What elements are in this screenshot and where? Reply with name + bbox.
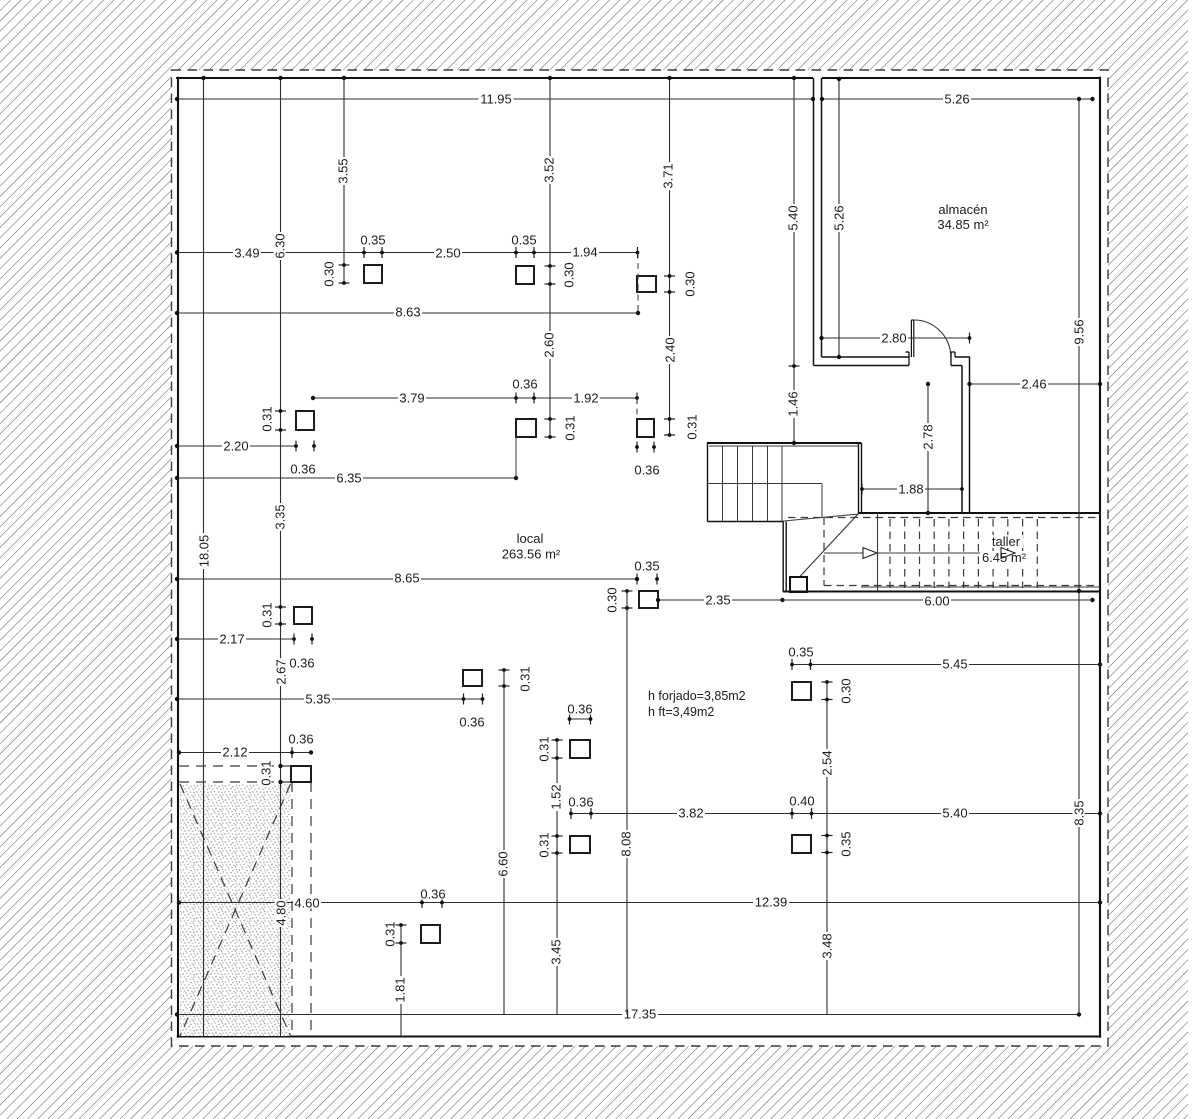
svg-text:0.36: 0.36	[289, 655, 314, 670]
svg-text:h forjado=3,85m2: h forjado=3,85m2	[648, 689, 746, 703]
svg-text:2.12: 2.12	[222, 744, 247, 759]
svg-text:0.31: 0.31	[562, 415, 577, 440]
svg-text:h ft=3,49m2: h ft=3,49m2	[648, 705, 714, 719]
svg-text:3.49: 3.49	[234, 245, 259, 260]
svg-text:3.45: 3.45	[548, 939, 563, 964]
svg-text:4.80: 4.80	[273, 900, 288, 925]
svg-text:0.36: 0.36	[459, 714, 484, 729]
svg-text:0.35: 0.35	[634, 558, 659, 573]
svg-text:3.35: 3.35	[272, 504, 287, 529]
svg-text:almacén: almacén	[938, 202, 987, 217]
svg-text:0.36: 0.36	[568, 794, 593, 809]
svg-text:4.60: 4.60	[294, 895, 319, 910]
svg-text:3.48: 3.48	[819, 933, 834, 958]
svg-text:5.26: 5.26	[944, 91, 969, 106]
svg-text:3.82: 3.82	[678, 805, 703, 820]
svg-text:0.31: 0.31	[259, 602, 274, 627]
svg-text:2.78: 2.78	[920, 424, 935, 449]
svg-text:5.45: 5.45	[942, 656, 967, 671]
svg-text:0.31: 0.31	[258, 760, 273, 785]
svg-text:3.55: 3.55	[335, 158, 350, 183]
svg-text:0.35: 0.35	[360, 232, 385, 247]
svg-text:0.36: 0.36	[288, 731, 313, 746]
svg-text:5.40: 5.40	[942, 805, 967, 820]
svg-text:0.36: 0.36	[290, 461, 315, 476]
svg-text:0.31: 0.31	[684, 414, 699, 439]
svg-text:8.65: 8.65	[394, 570, 419, 585]
svg-text:2.17: 2.17	[219, 631, 244, 646]
svg-text:8.08: 8.08	[618, 831, 633, 856]
svg-text:8.63: 8.63	[395, 304, 420, 319]
svg-text:2.40: 2.40	[662, 337, 677, 362]
svg-text:5.26: 5.26	[831, 205, 846, 230]
svg-text:11.95: 11.95	[480, 91, 512, 106]
svg-text:6.30: 6.30	[272, 233, 287, 258]
svg-text:34.85 m²: 34.85 m²	[937, 217, 989, 232]
svg-text:1.92: 1.92	[573, 390, 598, 405]
svg-text:0.30: 0.30	[321, 261, 336, 286]
svg-text:0.31: 0.31	[517, 666, 532, 691]
svg-text:0.40: 0.40	[789, 793, 814, 808]
svg-text:0.31: 0.31	[536, 736, 551, 761]
svg-text:0.36: 0.36	[634, 462, 659, 477]
svg-text:12.39: 12.39	[755, 894, 788, 909]
svg-text:2.35: 2.35	[705, 592, 730, 607]
svg-text:263.56 m²: 263.56 m²	[502, 547, 561, 562]
svg-text:17.35: 17.35	[624, 1006, 657, 1021]
svg-text:1.46: 1.46	[785, 391, 800, 416]
svg-text:6.60: 6.60	[495, 851, 510, 876]
svg-text:0.31: 0.31	[536, 832, 551, 857]
svg-text:0.30: 0.30	[838, 678, 853, 703]
svg-text:2.54: 2.54	[819, 750, 834, 775]
svg-text:0.31: 0.31	[259, 406, 274, 431]
svg-text:0.36: 0.36	[420, 886, 445, 901]
svg-text:6.35: 6.35	[336, 470, 361, 485]
svg-text:0.35: 0.35	[511, 232, 536, 247]
svg-text:3.79: 3.79	[399, 390, 424, 405]
svg-text:2.46: 2.46	[1021, 376, 1046, 391]
svg-text:2.67: 2.67	[273, 659, 288, 684]
svg-text:2.50: 2.50	[435, 245, 460, 260]
svg-text:0.31: 0.31	[382, 921, 397, 946]
svg-text:9.56: 9.56	[1071, 319, 1086, 344]
svg-text:1.52: 1.52	[548, 784, 563, 809]
svg-text:5.35: 5.35	[305, 691, 330, 706]
svg-text:2.20: 2.20	[223, 438, 248, 453]
svg-text:0.35: 0.35	[788, 644, 813, 659]
svg-text:3.71: 3.71	[660, 163, 675, 188]
svg-text:0.30: 0.30	[682, 271, 697, 296]
svg-text:8.35: 8.35	[1071, 800, 1086, 825]
svg-text:0.36: 0.36	[512, 376, 537, 391]
svg-text:5.40: 5.40	[785, 205, 800, 230]
svg-text:0.36: 0.36	[567, 701, 592, 716]
svg-text:1.88: 1.88	[898, 481, 923, 496]
svg-text:local: local	[517, 531, 544, 546]
svg-text:18.05: 18.05	[196, 535, 211, 568]
svg-text:2.60: 2.60	[541, 332, 556, 357]
svg-text:1.81: 1.81	[392, 977, 407, 1002]
svg-text:2.80: 2.80	[881, 330, 906, 345]
svg-text:0.30: 0.30	[561, 262, 576, 287]
svg-text:6.00: 6.00	[924, 593, 949, 608]
svg-text:0.30: 0.30	[604, 587, 619, 612]
svg-text:0.35: 0.35	[838, 831, 853, 856]
svg-text:1.94: 1.94	[572, 244, 597, 259]
svg-text:taller: taller	[992, 534, 1021, 549]
svg-text:3.52: 3.52	[541, 157, 556, 182]
